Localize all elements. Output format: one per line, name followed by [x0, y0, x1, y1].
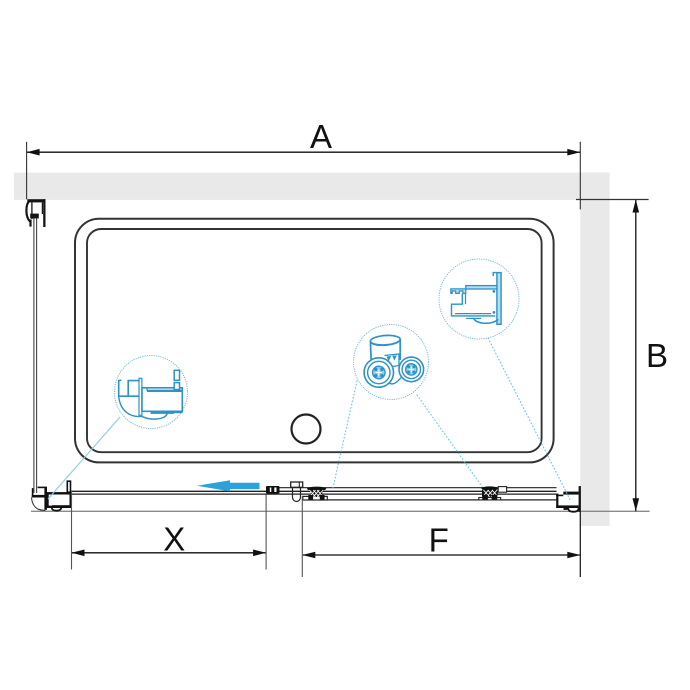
svg-text:B: B	[646, 337, 668, 374]
svg-text:F: F	[429, 522, 449, 559]
svg-text:A: A	[310, 118, 332, 155]
svg-text:X: X	[163, 521, 185, 558]
